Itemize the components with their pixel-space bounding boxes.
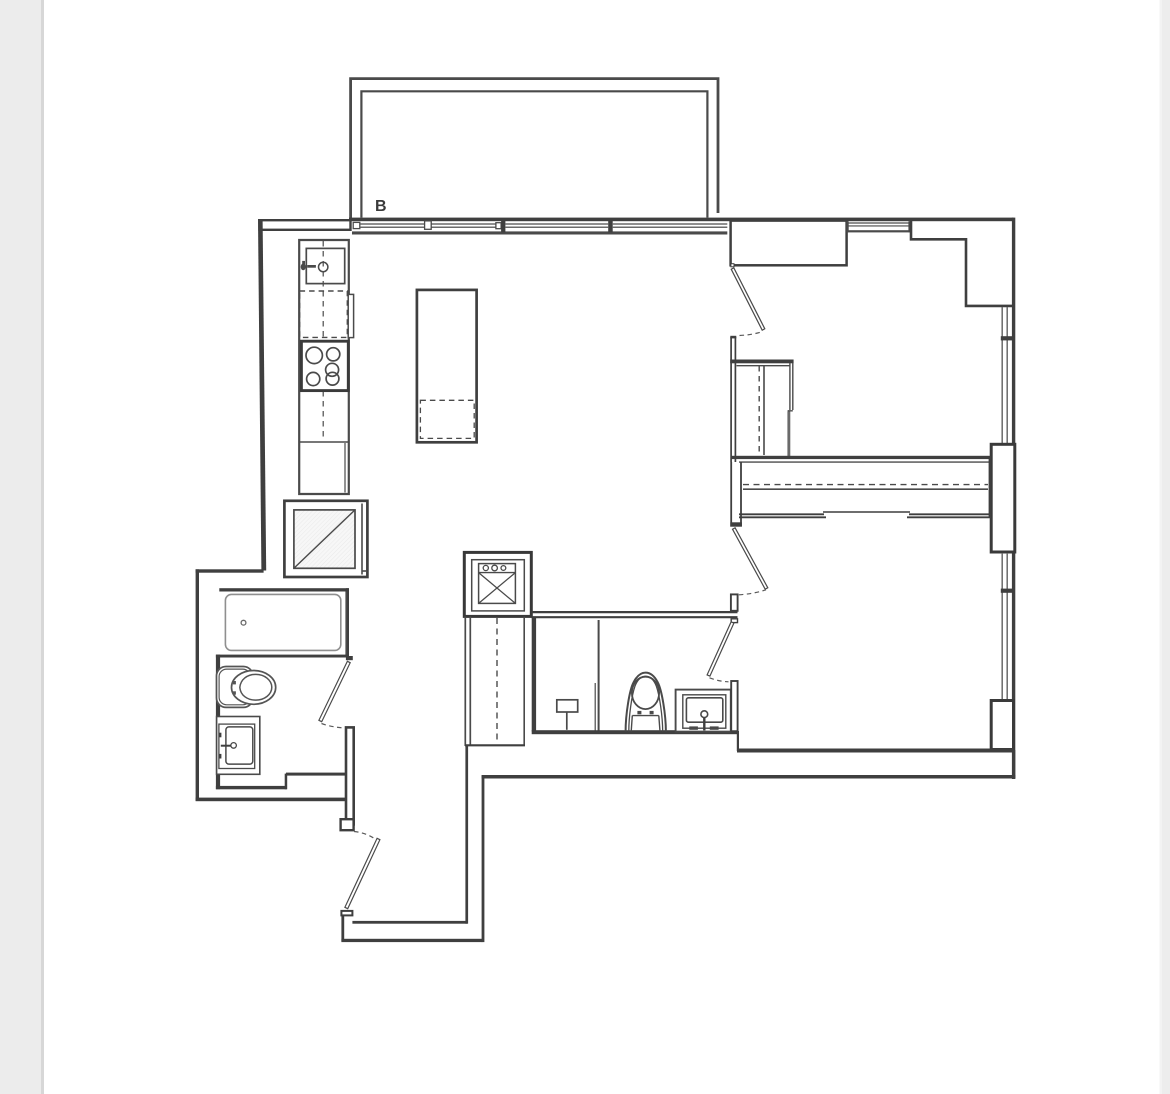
svg-text:B: B [375, 198, 387, 215]
